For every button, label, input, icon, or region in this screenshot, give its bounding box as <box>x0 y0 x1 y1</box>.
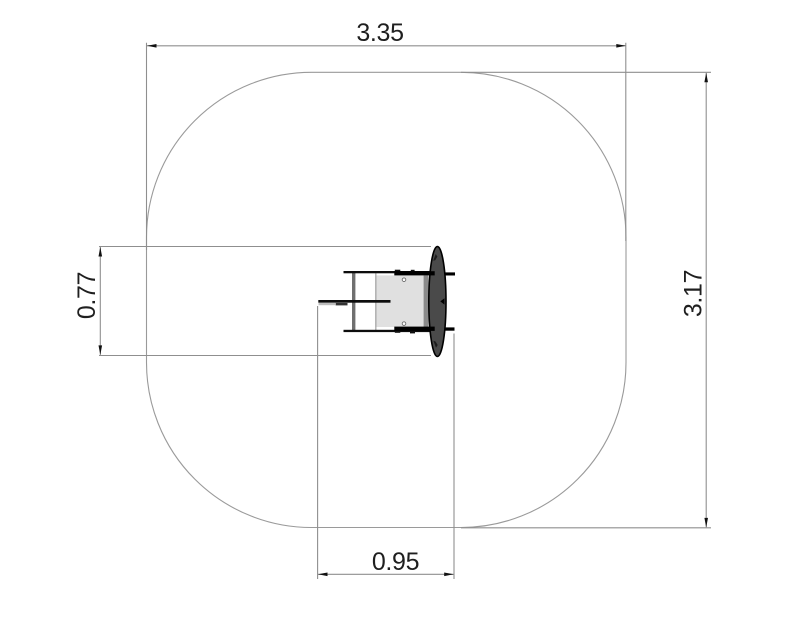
svg-text:0.77: 0.77 <box>73 272 101 319</box>
svg-text:3.35: 3.35 <box>356 19 403 47</box>
svg-text:0.95: 0.95 <box>372 548 419 576</box>
svg-text:3.17: 3.17 <box>680 270 708 317</box>
